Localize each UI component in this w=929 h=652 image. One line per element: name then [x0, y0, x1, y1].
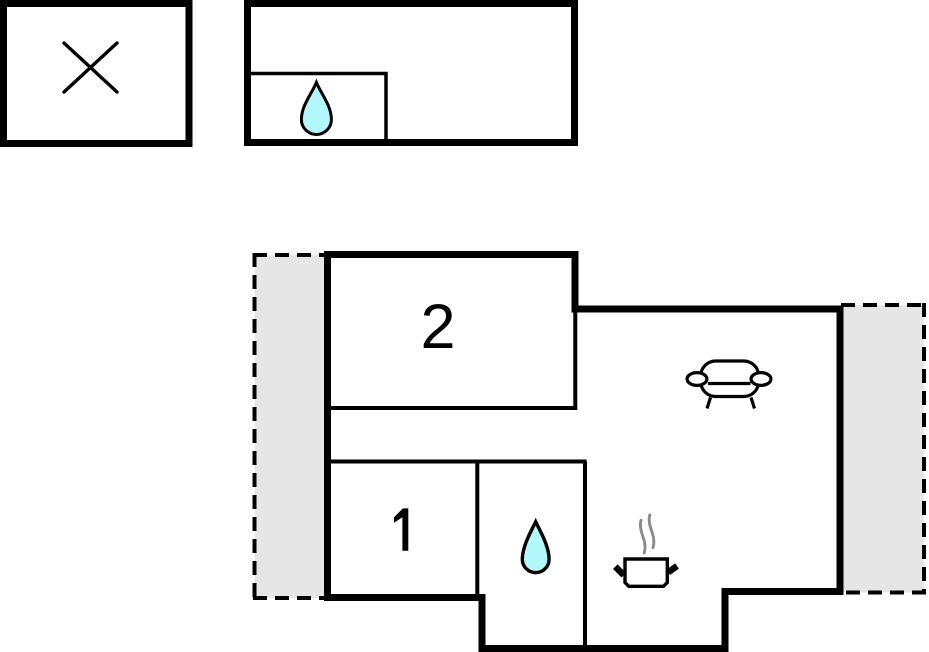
svg-text:2: 2	[420, 292, 455, 362]
